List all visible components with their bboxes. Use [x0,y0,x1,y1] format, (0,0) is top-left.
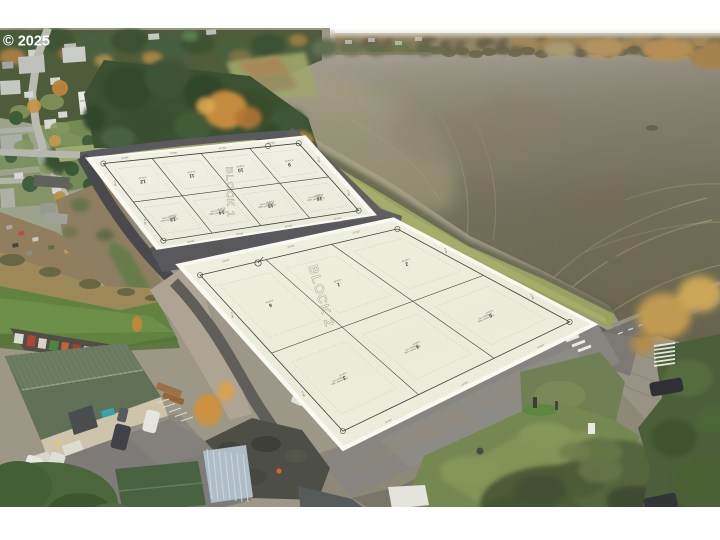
svg-text:© 2025: © 2025 [3,34,50,50]
